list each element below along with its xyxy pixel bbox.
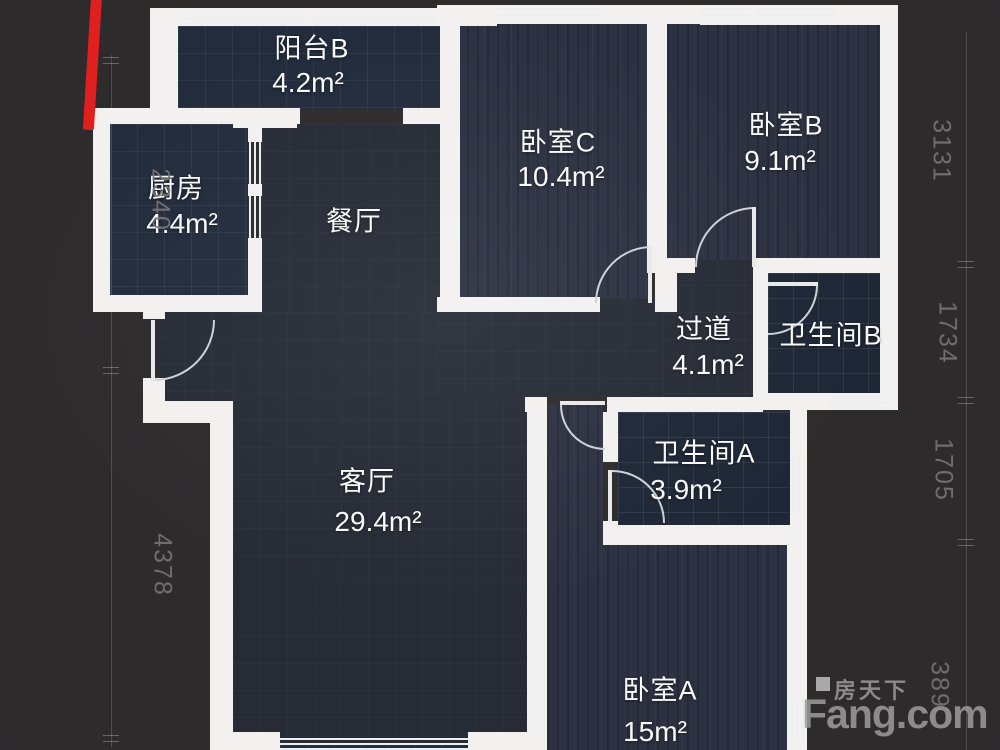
wall bbox=[647, 5, 667, 273]
door-leaf-entry bbox=[151, 320, 155, 381]
dimension-tick bbox=[103, 57, 119, 58]
wall bbox=[440, 24, 460, 312]
room-label-bathroom-a: 卫生间A bbox=[652, 432, 755, 471]
room-label-hallway: 过道 bbox=[676, 308, 732, 347]
room-label-balcony-b: 阳台B bbox=[274, 27, 349, 66]
room-area-bedroom-c: 10.4m² bbox=[517, 161, 604, 193]
wall bbox=[603, 525, 807, 545]
window-bathroom-b-icon bbox=[827, 396, 887, 408]
dimension-tick bbox=[103, 367, 119, 368]
watermark-brand-en: Fang.com bbox=[802, 691, 988, 738]
door-leaf-bedroom-c bbox=[648, 246, 652, 303]
door-leaf-bedroom-a bbox=[560, 401, 605, 405]
window-mullion bbox=[750, 8, 756, 21]
dimension-tick bbox=[958, 261, 974, 262]
dimension-tick bbox=[958, 397, 974, 398]
wall bbox=[232, 732, 280, 750]
dimension-tick bbox=[103, 63, 119, 64]
wall bbox=[603, 412, 618, 462]
wall bbox=[150, 8, 178, 115]
door-leaf-bedroom-b bbox=[752, 207, 756, 267]
wall bbox=[753, 258, 898, 273]
wall bbox=[248, 122, 262, 142]
dimension-tick bbox=[958, 403, 974, 404]
room-label-bedroom-b: 卧室B bbox=[748, 104, 823, 143]
wall bbox=[233, 108, 297, 128]
room-label-dining: 餐厅 bbox=[326, 200, 382, 239]
door-leaf-bathroom-a bbox=[608, 470, 612, 523]
kitchen-slider-block bbox=[248, 184, 262, 196]
room-area-bedroom-b: 9.1m² bbox=[744, 145, 816, 177]
dimension-label-right-1: 3131 bbox=[927, 119, 956, 183]
room-label-living: 客厅 bbox=[339, 460, 395, 499]
fang-logo-icon bbox=[816, 677, 830, 691]
wall bbox=[667, 258, 695, 273]
room-area-balcony-b: 4.2m² bbox=[272, 67, 344, 99]
dimension-label-left-top: 2340 bbox=[146, 168, 175, 232]
dimension-tick bbox=[958, 539, 974, 540]
wall bbox=[143, 378, 165, 423]
door-leaf-bathroom-b bbox=[768, 282, 818, 286]
dimension-tick bbox=[103, 735, 119, 736]
dimension-line-right bbox=[966, 32, 967, 750]
wall bbox=[607, 397, 763, 412]
dimension-label-right-2: 1734 bbox=[933, 301, 962, 365]
window-bedroom-c-icon bbox=[497, 8, 600, 21]
room-label-bedroom-c: 卧室C bbox=[520, 121, 597, 160]
room-label-bedroom-a: 卧室A bbox=[622, 669, 697, 708]
window-bedroom-b-icon bbox=[700, 8, 835, 21]
window-bathroom-a-icon bbox=[792, 455, 805, 515]
room-area-hallway: 4.1m² bbox=[672, 349, 744, 381]
window-mullion bbox=[306, 11, 312, 24]
room-label-bathroom-b: 卫生间B bbox=[779, 314, 882, 353]
dimension-tick bbox=[958, 267, 974, 268]
wall-outer-right bbox=[880, 5, 898, 410]
dimension-tick bbox=[103, 373, 119, 374]
dimension-tick bbox=[103, 741, 119, 742]
wall bbox=[210, 420, 233, 750]
wall bbox=[753, 262, 768, 410]
wall-outer-left bbox=[93, 111, 110, 310]
wall bbox=[143, 303, 165, 319]
room-area-bedroom-a: 15m² bbox=[623, 716, 687, 748]
dimension-label-right-3: 1705 bbox=[929, 438, 958, 502]
dimension-tick bbox=[958, 545, 974, 546]
floorplan-canvas: 阳台B 4.2m² 厨房 4.4m² 餐厅 卧室C 10.4m² 卧室B 9.1… bbox=[0, 0, 1000, 750]
wall bbox=[468, 732, 547, 750]
window-living-south-icon bbox=[280, 738, 468, 750]
wall bbox=[527, 397, 547, 750]
room-area-bathroom-a: 3.9m² bbox=[650, 474, 722, 506]
wall bbox=[248, 238, 262, 312]
dimension-label-left-bottom: 4378 bbox=[148, 533, 177, 597]
wall bbox=[437, 297, 600, 312]
dimension-line-left bbox=[111, 55, 112, 747]
room-area-living: 29.4m² bbox=[334, 506, 421, 538]
wall bbox=[93, 295, 262, 312]
